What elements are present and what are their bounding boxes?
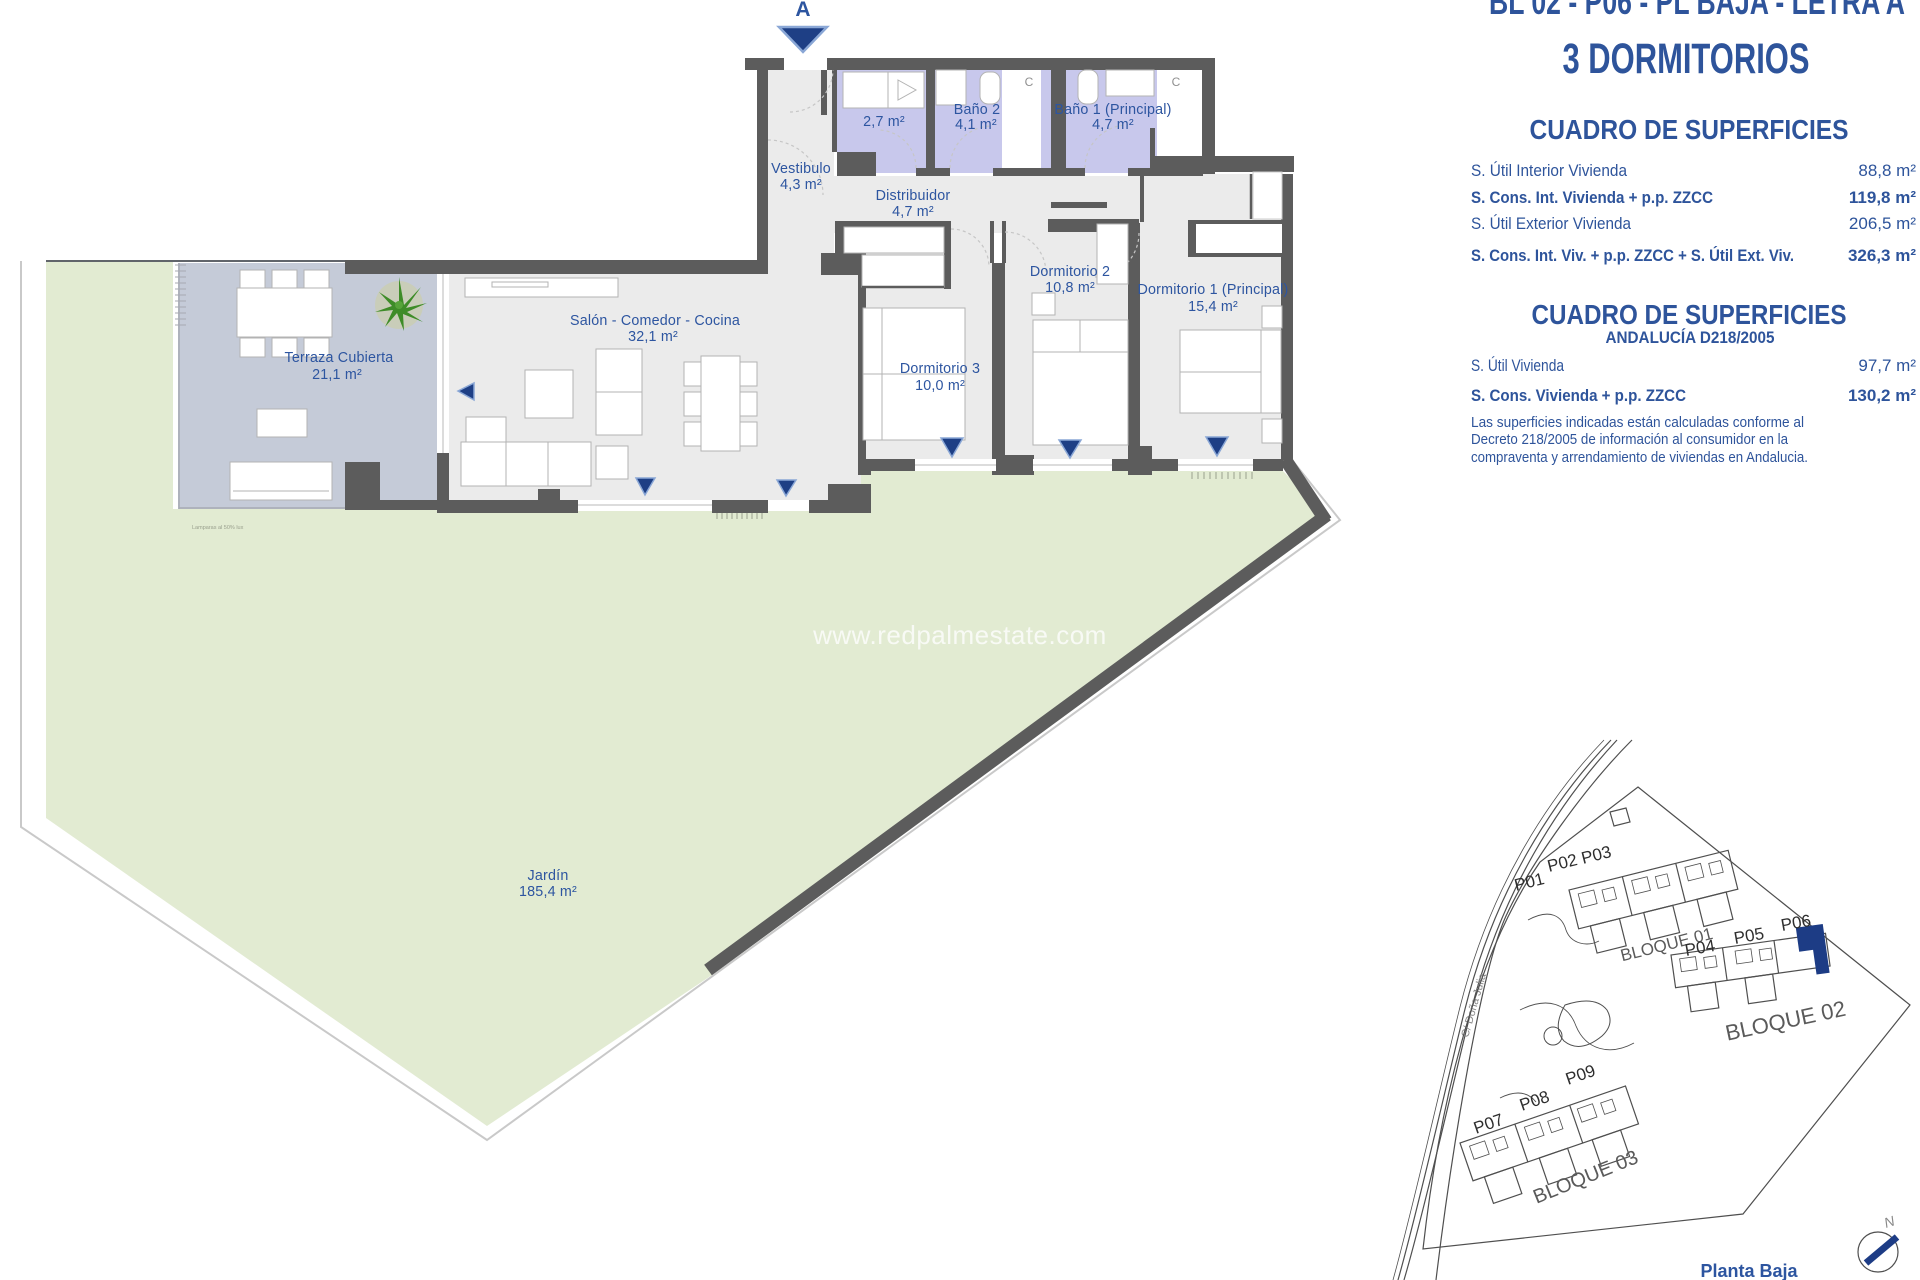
svg-text:206,5 m²: 206,5 m² (1849, 214, 1916, 233)
svg-text:10,0 m²: 10,0 m² (915, 378, 965, 394)
svg-text:Vestibulo: Vestibulo (771, 161, 831, 177)
svg-text:4,3 m²: 4,3 m² (780, 177, 822, 193)
svg-text:S. Útil Exterior Vivienda: S. Útil Exterior Vivienda (1471, 214, 1631, 233)
svg-text:Baño 2: Baño 2 (954, 102, 1001, 118)
svg-text:32,1 m²: 32,1 m² (628, 329, 678, 345)
svg-text:Lamparas al 50% lux: Lamparas al 50% lux (192, 525, 244, 531)
svg-text:S. Cons. Int. Vivienda + p.p.: S. Cons. Int. Vivienda + p.p. ZZCC (1471, 188, 1713, 207)
svg-text:BL 02 - P06 - PL BAJA - LETRA: BL 02 - P06 - PL BAJA - LETRA A (1489, 0, 1905, 22)
svg-text:119,8 m²: 119,8 m² (1849, 188, 1916, 207)
svg-text:Jardín: Jardín (528, 868, 569, 884)
svg-text:CUADRO DE SUPERFICIES: CUADRO DE SUPERFICIES (1532, 299, 1847, 330)
svg-text:Baño 1 (Principal): Baño 1 (Principal) (1054, 102, 1171, 118)
svg-text:S. Útil Vivienda: S. Útil Vivienda (1471, 356, 1564, 375)
svg-text:A: A (795, 0, 810, 21)
svg-text:S. Cons. Vivienda + p.p. ZZCC: S. Cons. Vivienda + p.p. ZZCC (1471, 386, 1686, 405)
svg-text:Decreto 218/2005 de informació: Decreto 218/2005 de información al consu… (1471, 431, 1789, 448)
svg-text:Salón - Comedor - Cocina: Salón - Comedor - Cocina (570, 313, 740, 329)
svg-text:2,7 m²: 2,7 m² (863, 114, 905, 130)
svg-text:Distribuidor: Distribuidor (876, 188, 951, 204)
svg-text:ANDALUCÍA D218/2005: ANDALUCÍA D218/2005 (1606, 328, 1775, 347)
svg-text:Planta Baja: Planta Baja (1700, 1261, 1798, 1280)
svg-text:Dormitorio 1 (Principal): Dormitorio 1 (Principal) (1138, 282, 1289, 298)
svg-text:Dormitorio 2: Dormitorio 2 (1030, 264, 1110, 280)
svg-text:S. Cons. Int. Viv. + p.p. ZZCC: S. Cons. Int. Viv. + p.p. ZZCC + S. Útil… (1471, 246, 1794, 265)
svg-text:4,7 m²: 4,7 m² (892, 204, 934, 220)
svg-text:Dormitorio 3: Dormitorio 3 (900, 361, 980, 377)
svg-text:CUADRO DE SUPERFICIES: CUADRO DE SUPERFICIES (1530, 114, 1849, 145)
svg-text:10,8 m²: 10,8 m² (1045, 280, 1095, 296)
svg-text:185,4 m²: 185,4 m² (519, 884, 577, 900)
svg-text:4,7 m²: 4,7 m² (1092, 117, 1134, 133)
svg-text:88,8 m²: 88,8 m² (1858, 161, 1916, 180)
svg-text:130,2 m²: 130,2 m² (1848, 386, 1916, 405)
svg-text:Terraza Cubierta: Terraza Cubierta (285, 350, 394, 366)
svg-text:www.redpalmestate.com: www.redpalmestate.com (812, 620, 1107, 650)
svg-text:compraventa y arrendamiento de: compraventa y arrendamiento de viviendas… (1471, 449, 1808, 466)
svg-text:C: C (1025, 75, 1034, 89)
svg-text:Las superficies indicadas está: Las superficies indicadas están calculad… (1471, 414, 1804, 431)
svg-text:S. Útil Interior Vivienda: S. Útil Interior Vivienda (1471, 161, 1627, 180)
svg-text:326,3 m²: 326,3 m² (1848, 246, 1916, 265)
svg-text:3 DORMITORIOS: 3 DORMITORIOS (1563, 35, 1810, 83)
svg-text:15,4 m²: 15,4 m² (1188, 299, 1238, 315)
svg-text:4,1 m²: 4,1 m² (955, 117, 997, 133)
svg-text:C: C (1172, 75, 1181, 89)
svg-text:97,7 m²: 97,7 m² (1858, 356, 1916, 375)
svg-text:21,1 m²: 21,1 m² (312, 367, 362, 383)
